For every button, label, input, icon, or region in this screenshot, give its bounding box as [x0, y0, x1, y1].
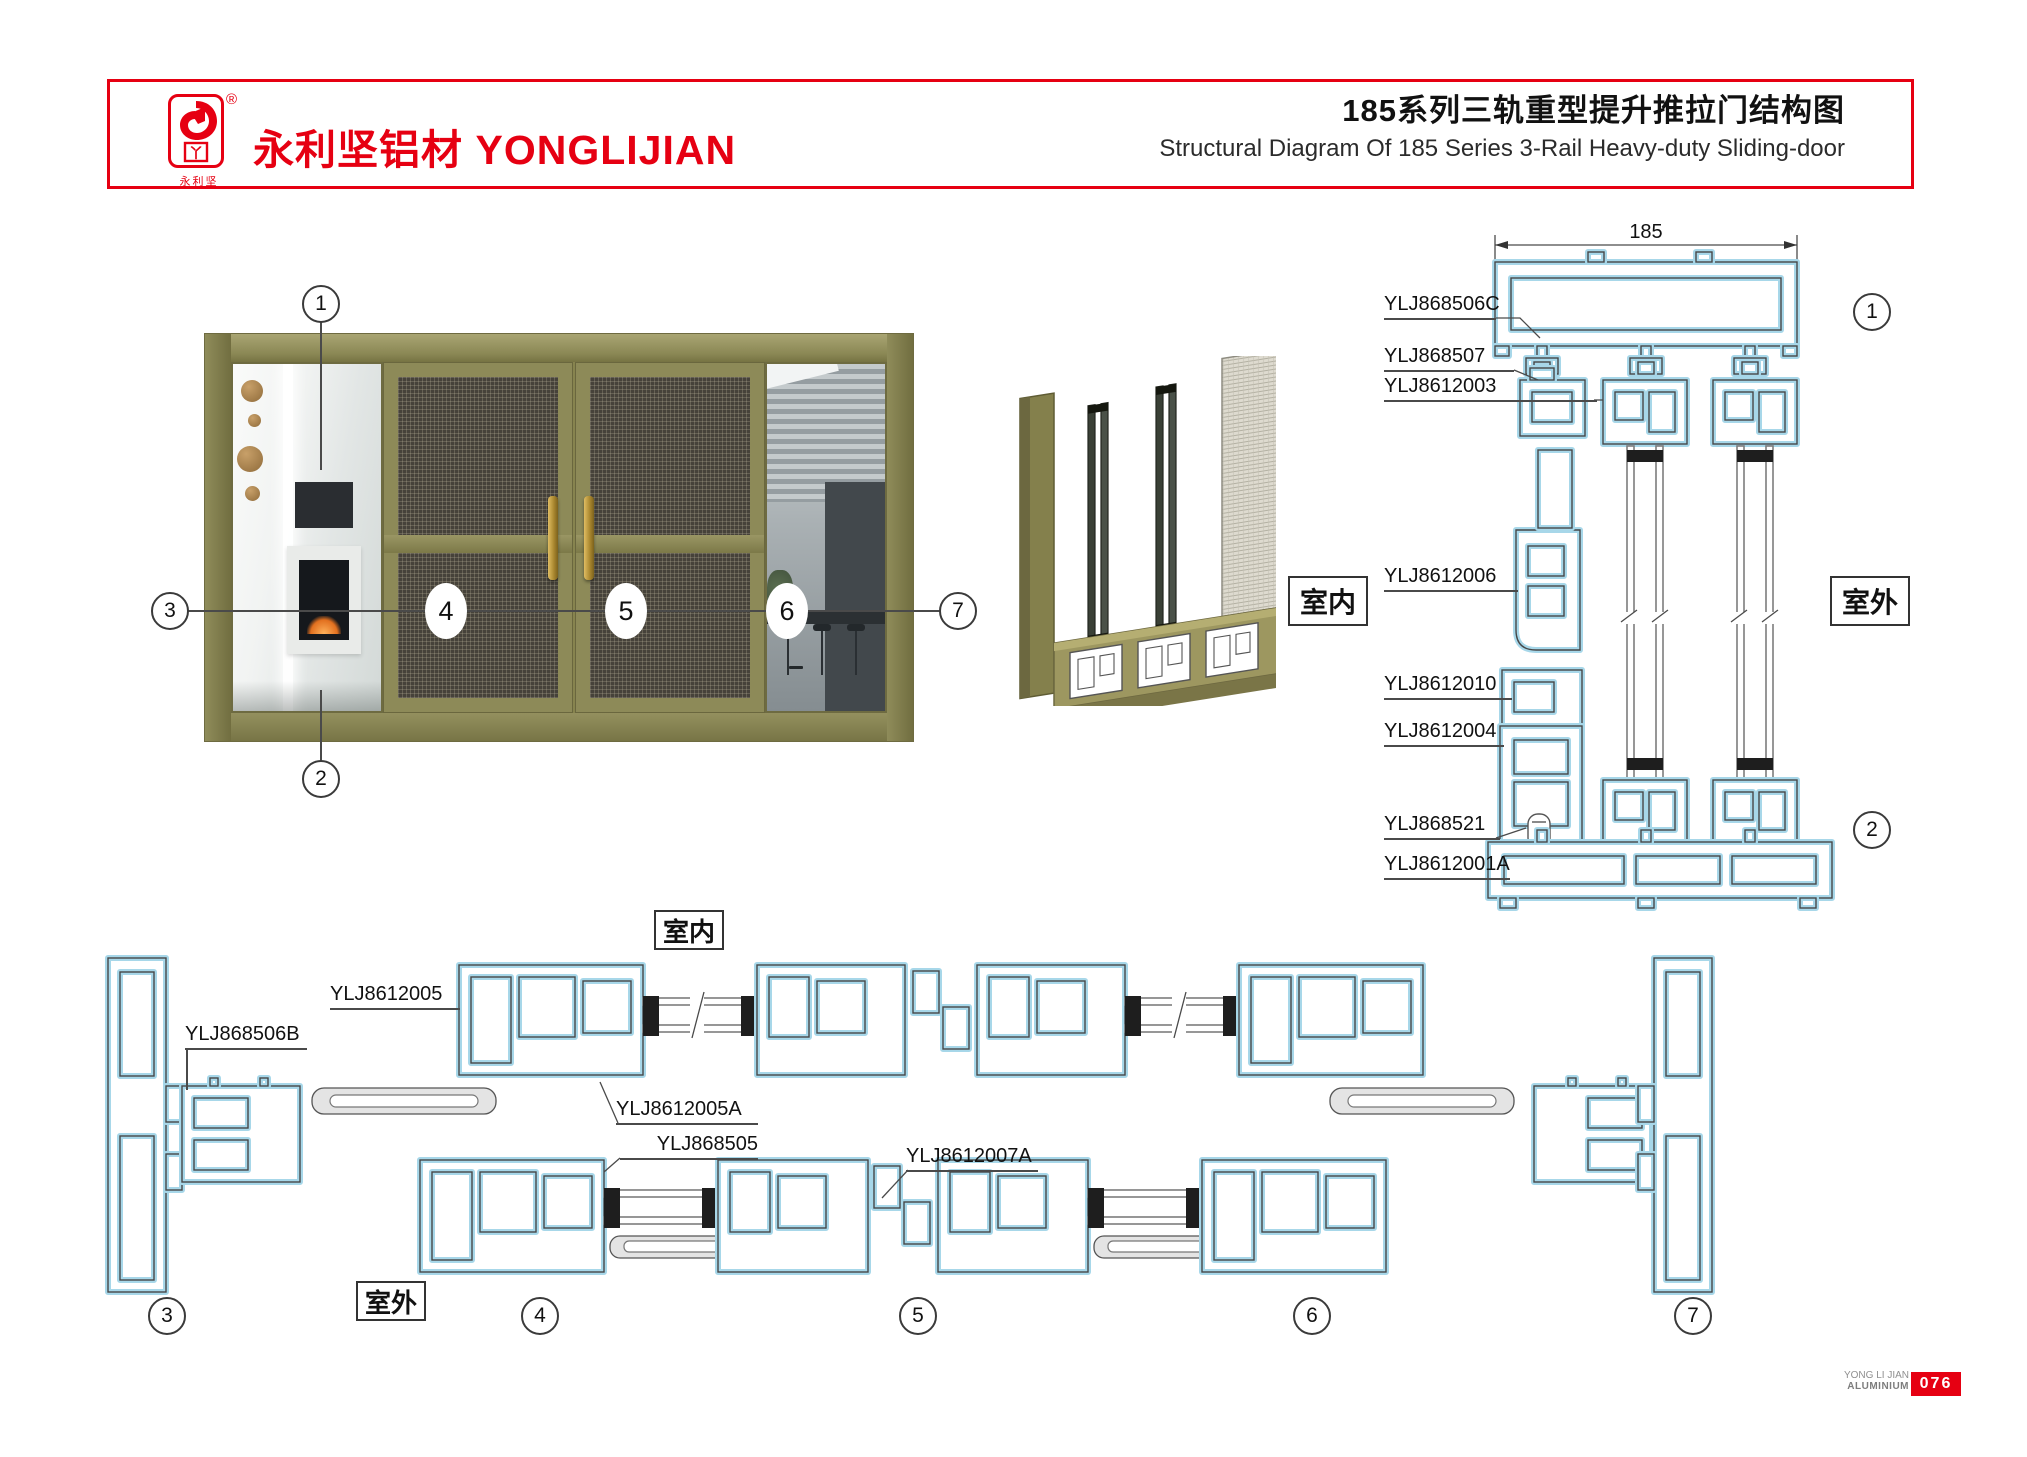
door-panel-left-glass — [231, 362, 383, 713]
callout-1-number: 1 — [315, 292, 327, 316]
part-label: YLJ868505 — [620, 1132, 758, 1160]
lift-rod — [312, 1088, 496, 1114]
brand-name-en: YONGLIJIAN — [475, 127, 736, 173]
glazing-unit-3d — [1156, 384, 1176, 633]
part-label: YLJ8612001A — [1384, 852, 1510, 880]
outdoor-row-profiles — [420, 1160, 1386, 1272]
bar-stool — [813, 624, 831, 631]
outdoor-label-box: 室外 — [356, 1281, 426, 1321]
callout-4-number: 4 — [438, 596, 453, 627]
flame — [307, 616, 341, 634]
track-rail — [1734, 346, 1766, 374]
part-label: YLJ8612007A — [906, 1144, 1038, 1172]
section-callout-1: 1 — [1853, 293, 1891, 331]
bar-stool — [847, 624, 865, 631]
lift-rod — [1330, 1088, 1514, 1114]
top-track-profile — [1495, 252, 1797, 374]
brand-name: 永利坚铝材 YONGLIJIAN — [253, 116, 736, 176]
registered-mark: ® — [226, 94, 237, 106]
mesh-midrail — [384, 535, 572, 553]
right-frame-stub — [1534, 1078, 1652, 1182]
bottom-track-profile — [1488, 830, 1832, 908]
section-callout-3-number: 3 — [161, 1304, 173, 1328]
callout-line-2 — [320, 690, 322, 762]
section-callout-3: 3 — [148, 1297, 186, 1335]
indoor-label-box: 室内 — [1288, 576, 1368, 626]
part-label: YLJ8612006 — [1384, 564, 1518, 592]
part-label: YLJ868521 — [1384, 812, 1500, 840]
page-number-badge: 076 — [1911, 1372, 1961, 1396]
outdoor-label-box: 室外 — [1830, 576, 1910, 626]
track-rail — [1630, 346, 1662, 374]
section-callout-7: 7 — [1674, 1297, 1712, 1335]
part-label: YLJ8612005A — [616, 1097, 758, 1125]
door-panel-right-glass — [765, 362, 887, 713]
callout-3-number: 3 — [164, 599, 176, 623]
callout-5-number: 5 — [618, 596, 633, 627]
section-callout-5: 5 — [899, 1297, 937, 1335]
section-callout-5-number: 5 — [912, 1304, 924, 1328]
callout-6: 6 — [766, 583, 808, 639]
callout-2-number: 2 — [315, 767, 327, 791]
section-callout-1-number: 1 — [1866, 300, 1878, 324]
glazing-unit-3d — [1088, 403, 1108, 644]
right-jamb-profile — [1638, 958, 1712, 1292]
footer-brand: YONG LI JIAN ALUMINIUM — [1844, 1370, 1909, 1392]
wall-tv — [295, 482, 353, 528]
door-handle-icon — [584, 496, 594, 580]
interlock-column — [1500, 368, 1585, 842]
callout-5: 5 — [605, 583, 647, 639]
part-label: YLJ8612004 — [1384, 719, 1504, 747]
door-left-jamb — [205, 334, 231, 741]
door-right-jamb — [887, 334, 913, 741]
svg-text:丫: 丫 — [189, 145, 203, 161]
light-streak — [283, 364, 293, 713]
logo-caption: 永利坚 — [171, 173, 227, 189]
page-title: 185系列三轨重型提升推拉门结构图 Structural Diagram Of … — [1159, 90, 1845, 166]
callout-2: 2 — [302, 760, 340, 798]
leader-line — [186, 1048, 188, 1090]
callout-7-number: 7 — [952, 599, 964, 623]
section-callout-7-number: 7 — [1687, 1304, 1699, 1328]
left-jamb-profile — [108, 958, 182, 1292]
svg-text:185: 185 — [1629, 221, 1662, 243]
section-callout-4-number: 4 — [534, 1304, 546, 1328]
door-top-track — [205, 334, 913, 362]
brand-logo: 丫 永利坚 ® 永利坚铝材 YONGLIJIAN — [168, 94, 736, 176]
mesh-midrail — [576, 535, 764, 553]
frame-post-shade — [1020, 397, 1030, 699]
page-title-cn: 185系列三轨重型提升推拉门结构图 — [1159, 90, 1845, 132]
glazed-sash-column — [1713, 380, 1797, 842]
part-label: YLJ868506B — [185, 1022, 307, 1050]
mesh-pane-3d — [1222, 356, 1276, 617]
section-callout-6: 6 — [1293, 1297, 1331, 1335]
part-label: YLJ8612010 — [1384, 672, 1512, 700]
decor-disc — [241, 380, 263, 402]
door-panel-mesh-2 — [575, 362, 765, 713]
door-bottom-rail — [205, 713, 913, 741]
glazed-sash-column — [1603, 380, 1687, 842]
dimension-185: 185 — [1495, 221, 1797, 260]
stool-leg — [855, 631, 857, 675]
callout-line-1 — [320, 322, 322, 470]
dark-wall-panel — [825, 482, 887, 713]
decor-disc — [248, 414, 261, 427]
door-panel-mesh-1 — [383, 362, 573, 713]
page: 丫 永利坚 ® 永利坚铝材 YONGLIJIAN 185系列三轨重型提升推拉门结… — [0, 0, 2027, 1457]
section-callout-2-number: 2 — [1866, 818, 1878, 842]
profile-3d-render — [1018, 356, 1276, 706]
callout-7: 7 — [939, 592, 977, 630]
section-callout-2: 2 — [1853, 811, 1891, 849]
callout-4: 4 — [425, 583, 467, 639]
decor-disc — [237, 446, 263, 472]
decor-disc — [245, 486, 260, 501]
footer-brand-bottom: ALUMINIUM — [1844, 1381, 1909, 1392]
door-handle-icon — [548, 496, 558, 580]
indoor-row-profiles — [459, 965, 1423, 1075]
floor-shadow — [233, 681, 383, 711]
part-label: YLJ868507 — [1384, 344, 1514, 372]
part-label: YLJ8612005 — [330, 982, 460, 1010]
door-rendering — [205, 334, 913, 741]
logo-swoosh-icon: 丫 — [171, 97, 221, 165]
section-callout-4: 4 — [521, 1297, 559, 1335]
footer-brand-bottom-text: ALUMINIUM — [1847, 1381, 1909, 1392]
callout-3: 3 — [151, 592, 189, 630]
stool-leg — [821, 631, 823, 675]
part-label: YLJ8612003 — [1384, 374, 1597, 402]
section-callout-6-number: 6 — [1306, 1304, 1318, 1328]
callout-1: 1 — [302, 285, 340, 323]
callout-line-horizontal — [188, 610, 940, 612]
brand-name-cn: 永利坚铝材 — [253, 127, 463, 173]
footer-brand-top: YONG LI JIAN — [1844, 1370, 1909, 1381]
page-title-en: Structural Diagram Of 185 Series 3-Rail … — [1159, 132, 1845, 166]
logo-emblem-icon: 丫 永利坚 — [168, 94, 224, 168]
part-label: YLJ868506C — [1384, 292, 1496, 320]
indoor-label-box: 室内 — [654, 910, 724, 950]
left-frame-stub — [182, 1078, 300, 1182]
callout-6-number: 6 — [779, 596, 794, 627]
